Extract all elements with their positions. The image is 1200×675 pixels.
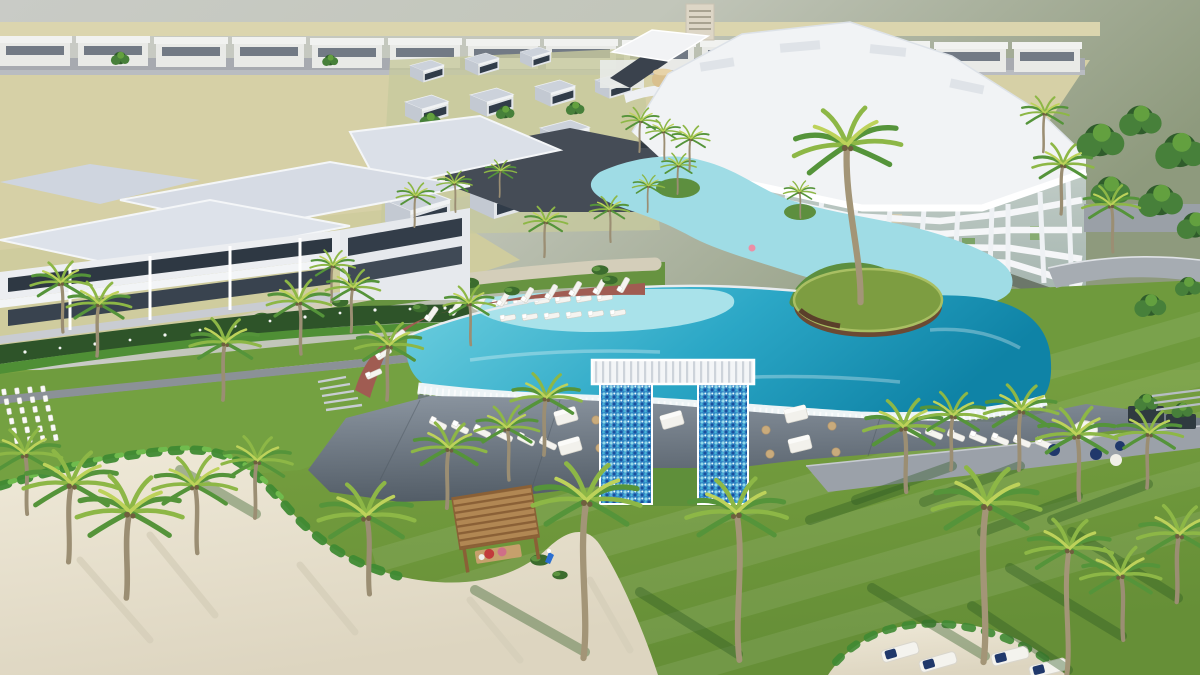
render-canvas [0, 0, 1200, 675]
pavilion-trellis-roof [592, 360, 754, 384]
flamingo-float [749, 245, 756, 252]
round-pool-bar [794, 269, 942, 337]
resort-aerial-render [0, 0, 1200, 675]
